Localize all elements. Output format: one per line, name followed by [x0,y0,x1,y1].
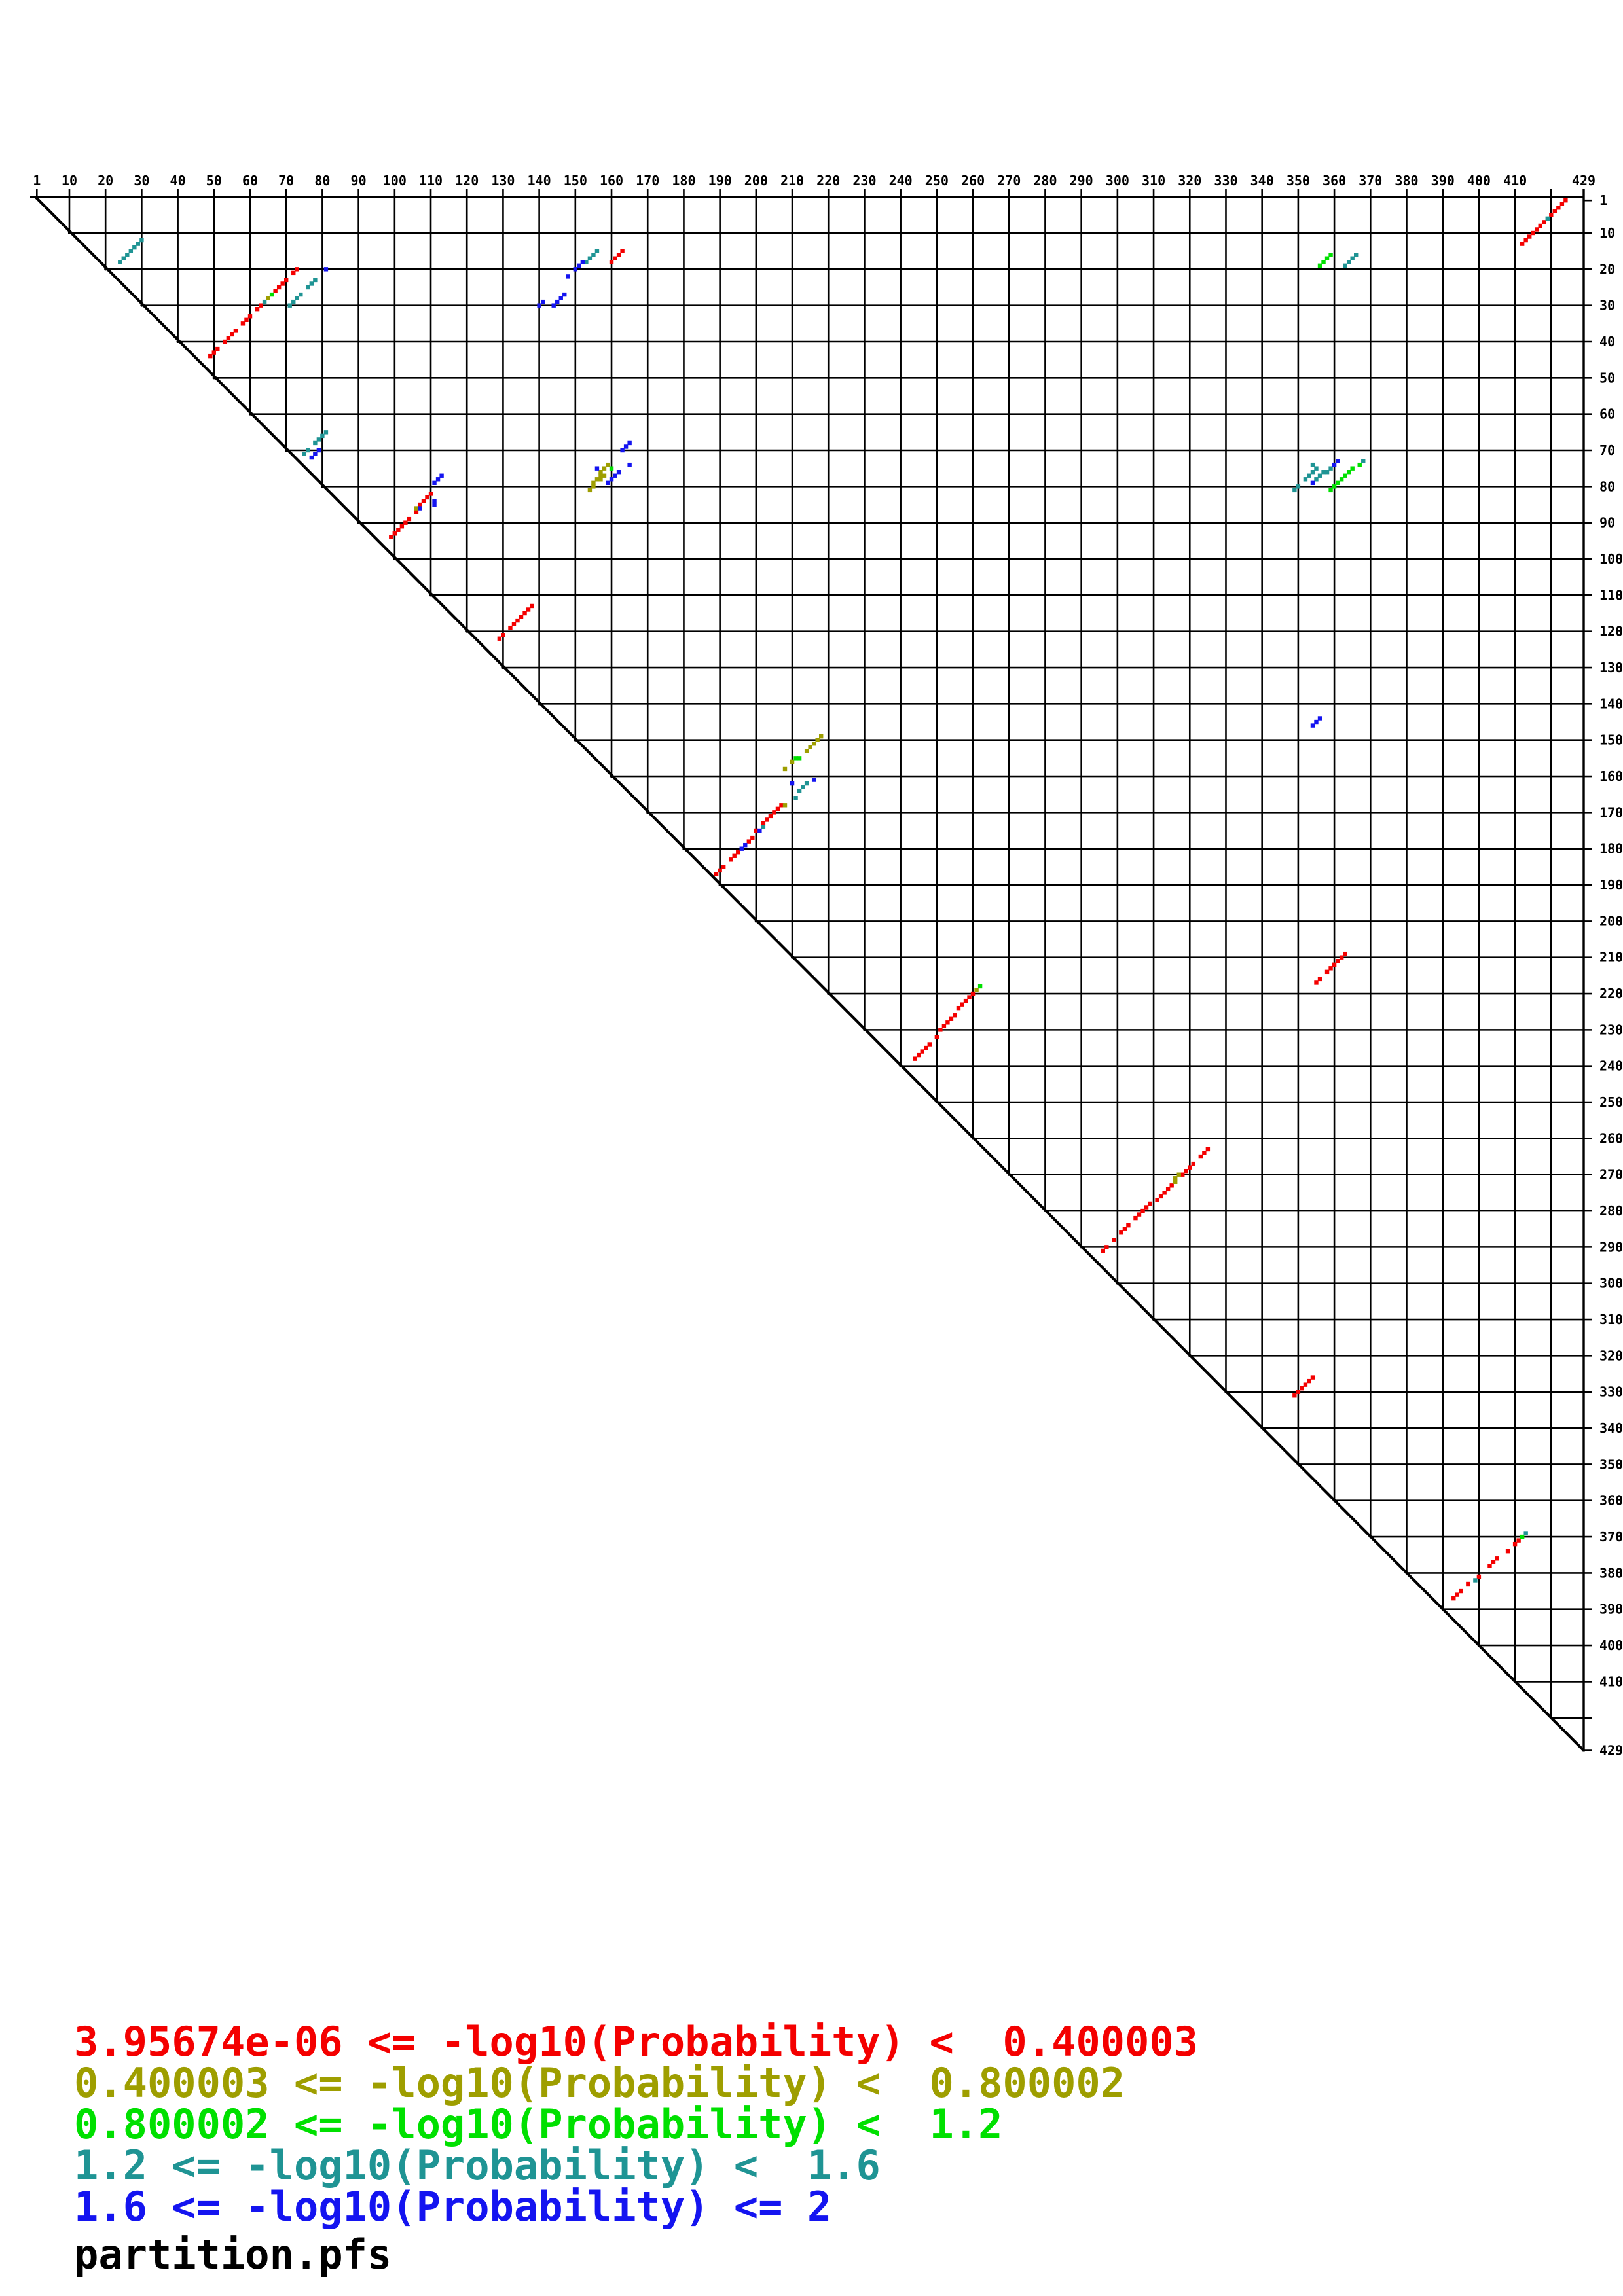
probability-dot [1336,959,1340,963]
y-tick-label: 290 [1599,1239,1623,1255]
probability-dot [512,622,516,626]
probability-dot [212,350,216,354]
y-tick-label: 170 [1599,804,1623,820]
probability-dot [1173,1176,1177,1180]
probability-dot [772,810,776,814]
probability-dot [797,789,801,793]
probability-dot [1336,481,1340,485]
x-tick-label: 320 [1178,173,1201,188]
probability-dot [1173,1180,1177,1184]
probability-dot [606,463,610,467]
probability-dot [812,778,816,781]
x-tick-label: 429 [1572,173,1596,188]
probability-dot [1177,1173,1181,1177]
y-tick-label: 230 [1599,1022,1623,1037]
probability-dot [215,347,219,351]
probability-dot [393,531,397,535]
probability-dot [555,300,559,304]
x-tick-label: 200 [744,173,768,188]
probability-dot [620,448,624,452]
probability-dot [917,1053,921,1057]
x-tick-label: 240 [889,173,913,188]
probability-dot [389,535,393,539]
probability-dot [436,477,440,481]
probability-dot [1523,1531,1527,1535]
probability-dot [793,756,797,760]
x-tick-label: 230 [852,173,876,188]
y-tick-label: 429 [1599,1743,1623,1759]
y-tick-label: 340 [1599,1420,1623,1436]
probability-dot [552,303,556,307]
dot-plot-canvas: 1102030405060708090100110120130140150160… [0,0,1623,2296]
probability-dot [729,857,733,861]
probability-dot [743,843,747,847]
probability-dot [783,803,787,807]
probability-dot [584,260,588,264]
probability-dot [1325,970,1329,974]
probability-dot [1321,260,1325,264]
probability-dot [1192,1162,1195,1166]
probability-dot [1199,1155,1203,1158]
probability-dot [508,626,512,630]
legend-line-3: 1.2 <= -log10(Probability) < 1.6 [74,2145,1198,2186]
probability-dot [1328,466,1332,470]
x-tick-label: 330 [1214,173,1237,188]
probability-dot [750,836,754,840]
probability-dot [938,1028,942,1031]
x-tick-label: 20 [98,173,113,188]
probability-dot [422,499,426,503]
probability-dot [1206,1147,1210,1151]
probability-dot [754,829,758,833]
probability-dot [1506,1549,1510,1553]
probability-dot [602,474,606,478]
y-tick-label: 30 [1599,298,1615,314]
probability-dot [1487,1564,1491,1568]
x-tick-label: 250 [925,173,949,188]
x-tick-label: 370 [1359,173,1382,188]
x-tick-label: 260 [961,173,985,188]
probability-dot [1119,1230,1123,1234]
plot-filename: partition.pfs [74,2234,1198,2275]
y-tick-label: 190 [1599,877,1623,893]
probability-dot [1332,463,1336,467]
probability-dot [1296,1390,1300,1394]
probability-dot [801,785,805,789]
probability-dot [1354,253,1358,257]
legend: 3.95674e-06 <= -log10(Probability) < 0.4… [74,2021,1198,2275]
probability-dot [248,314,252,318]
probability-dot [1350,466,1354,470]
probability-dot [964,999,968,1003]
probability-dot [418,503,422,507]
probability-dot [244,318,248,322]
y-tick-label: 330 [1599,1384,1623,1400]
probability-dot [595,249,599,253]
probability-dot [263,300,266,304]
probability-dot [591,484,595,488]
probability-dot [805,749,809,753]
probability-dot [425,495,429,499]
x-tick-label: 290 [1070,173,1093,188]
probability-dot [1133,1216,1137,1220]
probability-dot [1343,474,1347,478]
probability-dot [1307,474,1311,478]
y-tick-label: 380 [1599,1565,1623,1581]
probability-dot [1539,224,1542,228]
probability-dot [1347,470,1351,474]
probability-dot [740,846,744,850]
probability-dot [1328,966,1332,970]
x-tick-label: 160 [600,173,623,188]
y-tick-label: 80 [1599,478,1615,494]
probability-dot [924,1046,928,1050]
probability-dot [733,854,737,858]
probability-dot [1325,470,1329,474]
y-tick-label: 1 [1599,192,1607,208]
x-tick-label: 80 [314,173,330,188]
probability-dot [302,452,306,456]
probability-dot [577,264,581,268]
probability-dot [1318,977,1322,981]
probability-dot [1343,264,1347,268]
probability-dot [1516,1538,1520,1542]
probability-dot [610,477,613,481]
y-tick-label: 150 [1599,732,1623,748]
probability-dot [1314,477,1318,481]
y-tick-label: 50 [1599,370,1615,386]
probability-dot [530,604,534,608]
probability-dot [230,332,234,336]
probability-dot [945,1020,949,1024]
y-tick-label: 310 [1599,1312,1623,1327]
x-tick-label: 220 [816,173,840,188]
x-tick-label: 120 [455,173,479,188]
probability-dot [295,296,299,300]
probability-dot [714,872,718,876]
probability-dot [519,615,523,619]
x-tick-label: 300 [1106,173,1129,188]
probability-dot [317,448,321,452]
y-tick-label: 160 [1599,768,1623,784]
probability-dot [595,477,599,481]
probability-dot [598,477,602,481]
probability-dot [320,434,324,438]
y-tick-label: 390 [1599,1602,1623,1617]
y-tick-label: 90 [1599,515,1615,531]
dot-series-p-mid [270,253,1524,1539]
x-tick-label: 170 [636,173,659,188]
probability-dot [1311,470,1315,474]
probability-dot [1311,1375,1315,1379]
x-tick-label: 400 [1467,173,1491,188]
probability-dot [736,850,740,854]
probability-dot [819,734,823,738]
probability-dot [515,619,519,622]
probability-dot [1314,466,1318,470]
top-axis-tick-labels: 1102030405060708090100110120130140150160… [33,173,1596,188]
x-tick-label: 380 [1395,173,1418,188]
y-tick-label: 70 [1599,442,1615,458]
probability-dot [953,1013,957,1017]
x-tick-label: 360 [1322,173,1346,188]
probability-dot [978,984,982,988]
probability-dot [1166,1187,1170,1191]
probability-dot [136,242,140,245]
x-tick-label: 390 [1431,173,1455,188]
probability-dot [407,517,411,521]
probability-dot [1343,952,1347,956]
x-tick-label: 30 [134,173,149,188]
probability-dot [1358,463,1362,467]
probability-dot [591,481,595,485]
x-tick-label: 60 [242,173,258,188]
probability-dot [1140,1209,1144,1213]
probability-dot [299,293,302,296]
probability-dot [1553,209,1557,213]
y-tick-label: 320 [1599,1348,1623,1363]
y-tick-label: 410 [1599,1674,1623,1689]
probability-dot [1318,474,1322,478]
probability-dot [1304,477,1307,481]
y-tick-label: 130 [1599,660,1623,675]
probability-dot [960,1002,964,1006]
probability-dot [1361,459,1365,463]
probability-dot [935,1035,939,1039]
probability-dot [1328,488,1332,492]
probability-dot [118,260,122,264]
probability-dot [617,253,621,257]
probability-dot [812,742,816,745]
probability-dot [1459,1589,1463,1593]
y-tick-label: 180 [1599,841,1623,857]
probability-dot [284,278,288,282]
probability-dot [1527,234,1531,238]
probability-dot [747,839,751,843]
probability-dot [313,278,317,282]
probability-dot [1466,1582,1470,1586]
probability-dot [208,354,212,358]
probability-dot [1495,1556,1499,1560]
probability-dot [1546,217,1550,221]
probability-dot [949,1017,953,1021]
y-tick-label: 60 [1599,406,1615,422]
x-tick-label: 100 [383,173,407,188]
probability-dot [324,430,328,434]
probability-dot [414,506,418,510]
probability-dot [1311,481,1315,485]
probability-dot [942,1024,946,1028]
probability-dot [610,260,613,264]
y-tick-label: 40 [1599,334,1615,350]
probability-dot [396,528,400,532]
y-tick-label: 270 [1599,1167,1623,1183]
x-tick-label: 40 [170,173,186,188]
probability-dot [306,448,310,452]
probability-dot [541,300,545,304]
plot-grid [37,189,1592,1751]
x-tick-label: 50 [206,173,222,188]
probability-dot [1556,206,1560,209]
probability-dot [270,293,274,296]
probability-dot [783,767,787,771]
page: 1102030405060708090100110120130140150160… [0,0,1623,2296]
probability-dot [1451,1596,1455,1600]
probability-dot [581,260,585,264]
probability-dot [139,238,143,242]
probability-dot [1112,1238,1116,1242]
probability-dot [591,253,595,257]
probability-dot [1340,956,1343,960]
probability-dot [967,995,971,999]
probability-dot [765,817,769,821]
probability-dot [1455,1592,1459,1596]
probability-dot [613,474,617,478]
probability-dot [1560,202,1564,206]
probability-dot [624,444,628,448]
probability-dot [1549,213,1553,217]
probability-dot [241,321,245,325]
probability-dot [1491,1560,1495,1564]
y-tick-label: 250 [1599,1094,1623,1110]
probability-dot [761,825,765,829]
probability-dot [602,466,606,470]
probability-dot [610,466,613,470]
x-tick-label: 1 [33,173,41,188]
probability-dot [790,760,794,764]
probability-dot [414,510,418,514]
probability-dot [522,611,526,615]
probability-dot [974,988,978,992]
probability-dot [439,474,443,478]
probability-dot [793,796,797,800]
probability-dot [1148,1202,1152,1206]
x-tick-label: 410 [1503,173,1527,188]
right-axis-tick-labels: 1102030405060708090100110120130140150160… [1599,192,1623,1758]
probability-dot [1292,1393,1296,1397]
probability-dot [957,1006,960,1010]
x-tick-label: 270 [997,173,1021,188]
probability-dot [1513,1542,1517,1546]
probability-dot [757,829,761,833]
probability-dot [598,474,602,478]
y-tick-label: 280 [1599,1203,1623,1219]
y-tick-label: 10 [1599,225,1615,241]
probability-dot [526,607,530,611]
probability-dot [1296,484,1300,488]
x-tick-label: 150 [564,173,587,188]
legend-line-0: 3.95674e-06 <= -log10(Probability) < 0.4… [74,2021,1198,2062]
probability-dot [1202,1151,1206,1155]
probability-dot [1321,470,1325,474]
y-tick-label: 240 [1599,1058,1623,1074]
x-tick-label: 350 [1286,173,1310,188]
probability-dot [122,257,126,260]
probability-dot [129,249,133,253]
probability-dot [1328,253,1332,257]
probability-dot [1180,1173,1184,1177]
probability-dot [1318,264,1322,268]
probability-dot [291,300,295,304]
probability-dot [1318,716,1322,720]
x-tick-label: 130 [491,173,515,188]
probability-dot [501,633,505,637]
probability-dot [498,637,501,641]
probability-dot [1520,242,1524,245]
probability-dot [1304,1382,1307,1386]
probability-dot [259,303,263,307]
y-tick-label: 140 [1599,696,1623,711]
probability-dot [288,303,292,307]
probability-dot [1520,1535,1524,1539]
probability-dot [429,492,433,495]
probability-dot [769,814,773,818]
probability-dot [815,738,819,742]
probability-dot [432,481,436,485]
probability-dot [971,992,975,996]
legend-line-2: 0.800002 <= -log10(Probability) < 1.2 [74,2104,1198,2145]
y-tick-label: 300 [1599,1276,1623,1291]
probability-dot [125,253,129,257]
probability-dot [805,781,809,785]
y-tick-label: 350 [1599,1456,1623,1472]
y-tick-label: 120 [1599,624,1623,639]
probability-dot [1325,257,1329,260]
probability-dot [1188,1165,1192,1169]
x-tick-label: 340 [1250,173,1274,188]
y-tick-label: 200 [1599,913,1623,929]
probability-dot [1477,1575,1481,1579]
probability-dot [1563,198,1567,202]
probability-dot [223,340,227,344]
x-tick-label: 10 [62,173,77,188]
y-tick-label: 210 [1599,950,1623,965]
probability-dot [310,456,314,459]
probability-dot [291,271,295,275]
probability-dot [620,249,624,253]
diagonal-edge [35,197,1584,1751]
probability-dot [1336,459,1340,463]
probability-dot [574,267,577,271]
probability-dot [313,441,317,445]
probability-dot [295,267,299,271]
legend-line-4: 1.6 <= -log10(Probability) <= 2 [74,2186,1198,2227]
x-tick-label: 310 [1142,173,1165,188]
probability-dot [588,488,592,492]
probability-dot [403,520,407,524]
probability-dot [559,296,563,300]
probability-dot [761,821,765,825]
x-tick-label: 210 [780,173,804,188]
legend-line-1: 0.400003 <= -log10(Probability) < 0.8000… [74,2062,1198,2104]
probability-dot [1159,1194,1163,1198]
dot-series-p-highest [208,198,1568,1600]
y-tick-label: 110 [1599,587,1623,603]
y-tick-label: 220 [1599,986,1623,1001]
probability-dot [598,470,602,474]
x-tick-label: 140 [528,173,551,188]
probability-dot [1350,257,1354,260]
probability-dot [1347,260,1351,264]
x-tick-label: 70 [278,173,294,188]
probability-dot [808,745,812,749]
probability-dot [1332,963,1336,967]
probability-dot [1307,1379,1311,1383]
probability-dot [400,524,404,528]
probability-dot [1314,720,1318,724]
probability-dot [1104,1245,1108,1249]
probability-dot [627,463,631,467]
